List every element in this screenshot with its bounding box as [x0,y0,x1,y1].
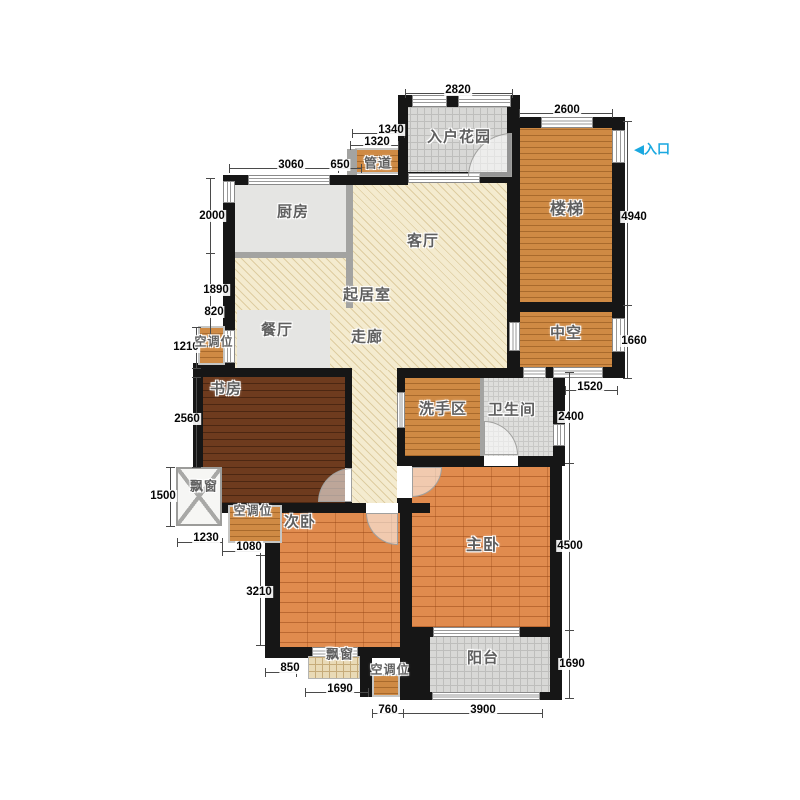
window [553,424,565,446]
bay-bottom-label: 飘窗 [326,644,354,663]
wash-area-label: 洗手区 [419,398,467,419]
dimension-tick [623,378,632,379]
window [432,692,540,700]
dimension-tick [623,305,632,306]
dimension-label: 3900 [469,704,497,716]
door-opening [397,466,412,498]
dimension-tick [206,178,215,179]
dimension-tick [222,547,223,556]
ac-bottom-label: 空调位 [370,661,409,678]
dimension-tick [617,386,618,395]
dining-room-label: 餐厅 [261,319,293,340]
dimension-label: 2000 [198,210,226,222]
dimension-tick [265,668,266,677]
dimension-line [260,555,261,645]
dimension-label: 3060 [277,159,305,171]
dimension-label: 4940 [620,211,648,223]
window [433,627,520,637]
stairs-label: 楼梯 [550,195,584,219]
second-bedroom-label: 次卧 [284,511,316,532]
study-label: 书房 [210,378,242,399]
window [541,117,593,128]
window [412,95,447,107]
dimension-label: 650 [329,159,350,171]
window [223,181,235,203]
dimension-tick [166,467,175,468]
dimension-tick [192,368,201,369]
floor-plan: 2820260013401320306065020001890820121025… [0,0,800,800]
dimension-label: 4500 [556,540,584,552]
window [553,367,603,378]
dimension-tick [565,630,574,631]
dimension-label: 1340 [377,124,405,136]
window [612,130,625,163]
window [458,95,511,107]
dimension-tick [229,164,230,173]
wall [507,302,625,312]
dimension-label: 1660 [620,335,648,347]
dimension-tick [403,709,404,718]
dimension-label: 2560 [173,413,201,425]
dimension-tick [166,526,175,527]
corridor-floor [345,370,405,513]
dimension-tick [368,688,369,697]
dimension-label: 1320 [363,136,391,148]
dimension-label: 1230 [192,532,220,544]
dimension-tick [350,141,351,150]
bay-left-label: 飘窗 [190,476,218,495]
entrance-label: 入口 [644,142,670,157]
dimension-label: 760 [377,704,398,716]
master-bedroom-label: 主卧 [466,531,500,555]
dimension-tick [565,463,574,464]
dimension-label: 1690 [326,683,354,695]
dimension-tick [565,698,574,699]
dimension-tick [192,327,201,328]
dimension-tick [206,253,215,254]
dimension-tick [352,129,353,138]
dimension-tick [372,709,373,718]
window [248,175,330,185]
dimension-label: 2600 [553,104,581,116]
dimension-label: 1690 [558,658,586,670]
dimension-tick [405,89,406,98]
partition-wall [235,252,353,258]
window [523,367,546,378]
dimension-tick [361,164,362,173]
dimension-tick [623,121,632,122]
door-opening [484,456,518,466]
dimension-tick [565,372,574,373]
entrance-marker: ◀入口 [634,139,670,158]
ac-upper-label: 空调位 [194,333,233,350]
window [509,322,520,351]
dimension-tick [612,109,613,118]
dimension-tick [512,89,513,98]
dimension-label: 1890 [202,284,230,296]
dimension-label: 3210 [245,586,273,598]
dimension-label: 1080 [235,541,263,553]
dimension-label: 1500 [149,490,177,502]
dimension-tick [177,538,178,547]
corridor-label: 走廊 [351,326,383,347]
sitting-room-label: 起居室 [343,284,391,305]
window [397,392,405,428]
dimension-label: 850 [279,662,300,674]
dimension-tick [305,688,306,697]
dimension-tick [542,709,543,718]
door-opening [366,503,398,513]
entry-garden-label: 入户花园 [427,126,491,147]
wall [193,368,352,377]
kitchen-label: 厨房 [277,201,309,222]
bathroom-label: 卫生间 [488,399,536,420]
dimension-tick [222,538,223,547]
dimension-tick [192,467,201,468]
dimension-tick [192,377,201,378]
dimension-label: 1520 [576,381,604,393]
hollow-label: 中空 [550,322,582,343]
dimension-label: 2820 [444,84,472,96]
dimension-tick [398,141,399,150]
dimension-label: 820 [203,306,224,318]
dimension-tick [256,645,265,646]
dimension-tick [519,109,520,118]
duct-label: 管道 [364,153,392,172]
balcony-label: 阳台 [467,647,499,668]
wall [397,456,562,467]
dimension-tick [256,555,265,556]
dimension-tick [565,386,566,395]
living-room-label: 客厅 [407,230,439,251]
ac-mid-label: 空调位 [233,502,272,519]
dimension-label: 2400 [557,411,585,423]
entrance-arrow-icon: ◀ [634,142,644,157]
